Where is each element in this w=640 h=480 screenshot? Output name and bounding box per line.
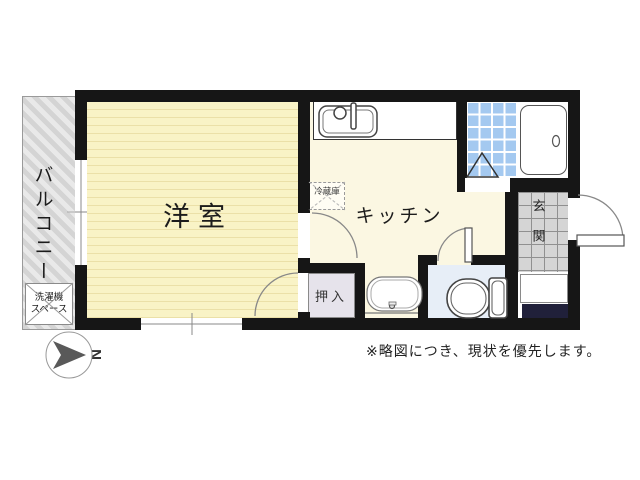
kitchen-hall-floor bbox=[457, 192, 505, 263]
compass-icon bbox=[46, 332, 92, 378]
wall-closet-right bbox=[355, 263, 365, 330]
wall-bath-bottom-left bbox=[457, 178, 465, 192]
window-bottom bbox=[141, 318, 242, 330]
wall-room-divider-upper bbox=[298, 102, 310, 213]
bathtub-icon bbox=[520, 105, 567, 175]
wall-bath-bottom-right bbox=[510, 178, 580, 192]
wall-room-divider-lower bbox=[298, 312, 310, 320]
wall-right-lower bbox=[568, 240, 580, 330]
wall-bath-left bbox=[457, 90, 467, 192]
shoe-step-dark-box bbox=[522, 304, 568, 319]
laundry-space-line1: 洗濯機 bbox=[35, 292, 64, 304]
washbasin-niche-floor bbox=[365, 263, 418, 318]
toilet-room-floor bbox=[428, 263, 505, 318]
closet-label: 押入 bbox=[306, 287, 356, 303]
entrance-door-arc bbox=[578, 195, 623, 240]
floorplan-canvas: バルコニー 洗濯機 スペース 洋室 キッチン 冷蔵庫 押入 玄関 ※略図につき、… bbox=[0, 0, 640, 480]
entrance-door-panel bbox=[577, 235, 624, 246]
bathroom-tile-floor bbox=[467, 102, 517, 178]
compass-north-letter: N bbox=[87, 349, 104, 360]
laundry-space-label: 洗濯機 スペース bbox=[25, 286, 73, 322]
window-left bbox=[75, 160, 87, 265]
toilet-door-opening bbox=[437, 255, 471, 265]
refrigerator-label: 冷蔵庫 bbox=[309, 185, 345, 196]
laundry-space-line2: スペース bbox=[31, 304, 68, 316]
disclaimer-caption: ※略図につき、現状を優先します。 bbox=[366, 341, 601, 361]
western-room-label: 洋室 bbox=[155, 198, 241, 230]
bath-door-opening bbox=[465, 178, 510, 192]
kitchen-counter bbox=[313, 101, 457, 140]
entrance-label: 玄関 bbox=[529, 198, 547, 260]
kitchen-label: キッチン bbox=[352, 202, 447, 226]
balcony-label: バルコニー bbox=[30, 152, 54, 298]
wall-left-upper bbox=[75, 90, 87, 160]
entrance-step-box bbox=[520, 274, 568, 303]
kitchen-door-opening bbox=[298, 213, 310, 258]
wall-top bbox=[75, 90, 580, 102]
entrance-door-opening bbox=[568, 198, 580, 240]
wall-entrance-left bbox=[505, 192, 518, 330]
wall-toilet-left bbox=[418, 255, 428, 330]
